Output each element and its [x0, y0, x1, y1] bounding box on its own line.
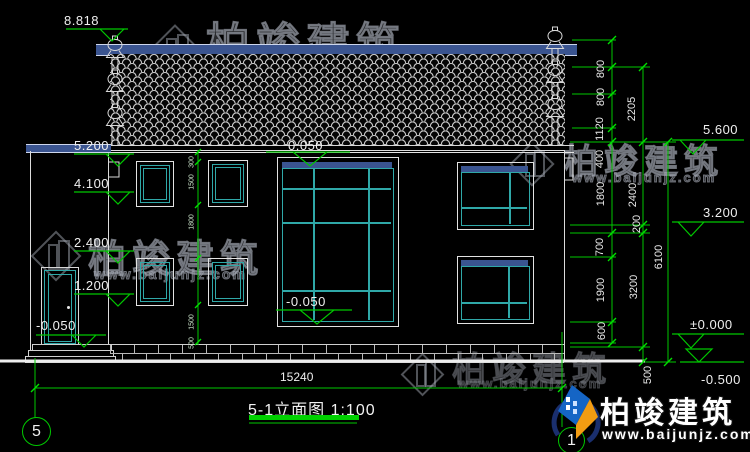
dim-label: 500 — [642, 366, 654, 384]
brand-logo-icon — [544, 383, 602, 449]
dim-label: 3200 — [628, 275, 640, 299]
dim-label-small: 1500 — [189, 314, 196, 330]
wall-notches — [108, 158, 573, 180]
elevation-label: -0.500 — [701, 372, 741, 387]
elevation-label: 2.400 — [74, 235, 109, 250]
dim-label: 200 — [631, 215, 643, 233]
dim-label: 400 — [594, 150, 606, 168]
brand-url: www.baijunjz.com — [602, 426, 750, 442]
dim-label: 600 — [596, 322, 608, 340]
dim-label-small: 300 — [189, 156, 196, 168]
dim-label-total-height: 6100 — [653, 245, 665, 269]
elevation-label: -0.050 — [286, 294, 326, 309]
dimension-ticks — [31, 36, 672, 392]
dim-label-small: 1500 — [189, 174, 196, 190]
elevation-label: -0.050 — [36, 318, 76, 333]
elevation-label: 3.200 — [703, 205, 738, 220]
roof-finials — [107, 27, 564, 146]
dim-label: 1120 — [594, 117, 606, 141]
elevation-label: 5.200 — [74, 138, 109, 153]
dim-label: 800 — [595, 88, 607, 106]
elevation-label: 0.050 — [288, 138, 323, 153]
dim-label: 1900 — [595, 278, 607, 302]
dim-label-small: 1800 — [189, 214, 196, 230]
axis-bubble-5: 5 — [22, 417, 51, 446]
dim-label-total-width: 15240 — [280, 370, 313, 384]
title-underline — [249, 415, 359, 420]
dim-label: 1800 — [595, 182, 607, 206]
elevation-label: 5.600 — [703, 122, 738, 137]
elevation-label: 1.200 — [74, 278, 109, 293]
elevation-label: ±0.000 — [690, 317, 733, 332]
dim-label: 700 — [594, 238, 606, 256]
dim-label: 800 — [595, 60, 607, 78]
elevation-drawing: 柏竣建筑 www.baijunjz.com 柏竣建筑 www.baijunjz.… — [0, 0, 750, 452]
elevation-label: 4.100 — [74, 176, 109, 191]
elevation-label: 8.818 — [64, 13, 99, 28]
axis-number: 5 — [32, 423, 41, 441]
dim-label-small: 500 — [189, 337, 196, 349]
dim-label: 2205 — [626, 97, 638, 121]
dim-label: 2400 — [627, 183, 639, 207]
dimension-chains — [35, 40, 676, 427]
